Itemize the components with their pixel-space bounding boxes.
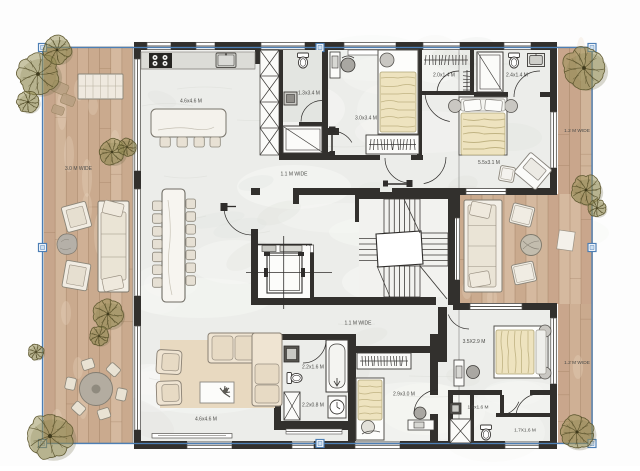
svg-text:3.0x3.4 M: 3.0x3.4 M xyxy=(355,116,377,122)
svg-text:1.6x1.6 M: 1.6x1.6 M xyxy=(467,405,488,411)
svg-text:2.2x1.6 M: 2.2x1.6 M xyxy=(302,365,324,371)
svg-text:1.2 M WIDE: 1.2 M WIDE xyxy=(564,360,590,366)
svg-text:1.7X1.6 M: 1.7X1.6 M xyxy=(514,428,536,434)
svg-text:2.4x1.4 M: 2.4x1.4 M xyxy=(506,73,528,79)
svg-text:2.9x3.0 M: 2.9x3.0 M xyxy=(393,392,415,398)
svg-text:4.6x4.6 M: 4.6x4.6 M xyxy=(195,417,217,423)
svg-text:1.1 M WIDE: 1.1 M WIDE xyxy=(281,172,309,178)
svg-text:5.5x3.1 M: 5.5x3.1 M xyxy=(478,160,500,166)
svg-text:3.0 M WIDE: 3.0 M WIDE xyxy=(65,166,93,172)
svg-text:3.5X2.9 M: 3.5X2.9 M xyxy=(463,339,486,345)
svg-text:1.3x3.4 M: 1.3x3.4 M xyxy=(298,91,320,97)
svg-text:4.6x4.6 M: 4.6x4.6 M xyxy=(180,99,202,105)
svg-text:2.2x0.8 M: 2.2x0.8 M xyxy=(302,403,324,409)
svg-text:1.1 M WIDE: 1.1 M WIDE xyxy=(345,321,373,327)
svg-text:2.0x1.4 M: 2.0x1.4 M xyxy=(433,73,455,79)
svg-text:1.2 M WIDE: 1.2 M WIDE xyxy=(564,128,590,134)
